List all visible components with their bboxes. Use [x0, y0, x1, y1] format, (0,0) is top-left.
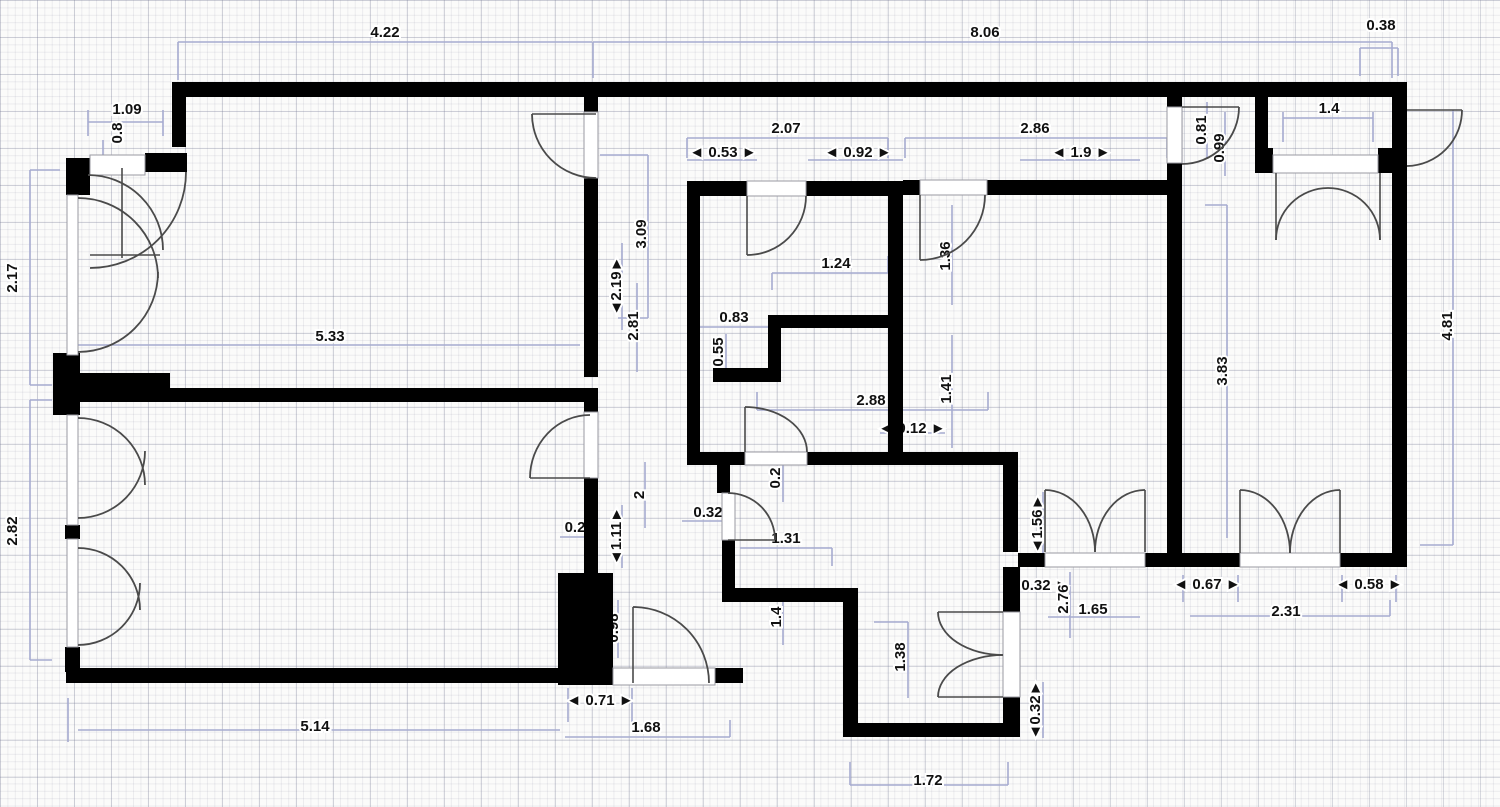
dimension-label: 1.68 [631, 719, 660, 736]
dimension-label: 0.2 [767, 468, 784, 489]
dimension-label: 0.38 [1366, 17, 1395, 34]
dimension-label: ◄ 0.58 ► [1335, 576, 1402, 593]
wall-segment [987, 180, 1167, 195]
dimension-label: 0.8 [109, 123, 126, 144]
dimension-label: 1.24 [821, 255, 851, 272]
door-window-opening [747, 181, 806, 196]
dimension-label: ◄1.56► [1029, 495, 1046, 554]
wall-segment [53, 388, 598, 402]
door-swing-arc [78, 451, 145, 518]
wall-segment [843, 602, 858, 737]
dimension-label: 1.4 [768, 606, 785, 628]
door-window-opening [584, 112, 598, 178]
door-window-opening [584, 412, 598, 478]
wall-segment [1255, 148, 1273, 173]
dimension-label: 8.06 [970, 24, 999, 41]
dimension-label: ◄ 0.71 ► [566, 692, 633, 709]
wall-segment [903, 452, 1018, 465]
dimension-label: 0.32 [693, 504, 722, 521]
wall-segment [65, 525, 80, 539]
wall-segment [713, 368, 781, 382]
dimension-label: ◄ 0.53 ► [689, 144, 756, 161]
dimension-label: 5.33 [315, 328, 344, 345]
wall-segment [1003, 567, 1020, 612]
door-window-opening [722, 493, 735, 540]
door-window-opening [613, 668, 715, 685]
door-swing-arc [1290, 490, 1340, 553]
wall-segment [1392, 82, 1407, 567]
wall-segment [1145, 553, 1240, 567]
wall-segment [584, 390, 598, 412]
door-window-opening [67, 195, 78, 355]
dimension-label: 2.82 [4, 516, 21, 545]
wall-segment [172, 97, 186, 147]
door-swing-arc [747, 196, 806, 255]
wall-segment [1255, 85, 1268, 148]
dimension-label: ◄1.11► [608, 507, 625, 565]
dimension-label: 1.4 [1319, 100, 1341, 117]
floor-plan-canvas: 4.228.060.381.090.82.172.825.335.142.07◄… [0, 0, 1500, 807]
wall-segment [768, 315, 781, 370]
wall-segment [66, 668, 633, 683]
wall-segment [888, 181, 903, 465]
dimension-label: 4.22 [370, 24, 399, 41]
dimension-label: 2.81 [625, 311, 642, 340]
wall-segment [1003, 465, 1018, 552]
door-window-opening [920, 180, 987, 195]
dimension-label: 2 [631, 491, 648, 499]
dimension-label: 1.41 [938, 374, 955, 403]
wall-segment [903, 180, 920, 195]
dimension-label: 2.88 [856, 392, 885, 409]
dimension-label: 1.72 [913, 772, 942, 789]
dimension-label: 3.09 [633, 219, 650, 248]
dimension-label: 0.81 [1193, 115, 1210, 144]
dimension-label: ◄ 0.92 ► [824, 144, 891, 161]
dimension-label: 1.65 [1078, 601, 1107, 618]
wall-segment [1340, 553, 1407, 567]
door-swing-arc [938, 655, 1003, 697]
wall-segment [717, 465, 730, 493]
door-swing-arc [78, 418, 145, 485]
door-window-opening [745, 452, 807, 465]
dimension-label: ◄ 1.9 ► [1052, 144, 1111, 161]
door-swing-arc [90, 172, 186, 268]
wall-segment [687, 452, 745, 465]
door-window-opening [67, 539, 78, 647]
wall-segment [843, 723, 1020, 737]
door-swing-arc [1045, 490, 1095, 552]
dimension-label: 4.81 [1439, 311, 1456, 340]
wall-segment [687, 181, 700, 465]
door-swing-arc [1276, 188, 1328, 240]
dimension-label: 0.55 [710, 337, 727, 366]
door-swing-arc [78, 548, 140, 610]
dimension-label: 2.31 [1271, 603, 1300, 620]
dimension-label: 1.38 [892, 642, 909, 671]
door-swing-arc [938, 612, 1003, 655]
wall-segment [1167, 163, 1182, 567]
door-swing-arc [78, 198, 158, 278]
dimension-label: ◄0.32► [1027, 681, 1044, 740]
wall-segment [1167, 97, 1182, 107]
dimension-label: 0.83 [719, 309, 748, 326]
door-swing-arc [745, 407, 807, 452]
wall-segment [558, 573, 613, 685]
wall-segment [584, 178, 598, 377]
door-window-opening [1167, 107, 1182, 163]
dimension-label: 1.09 [112, 101, 141, 118]
dimension-label: 3.83 [1214, 356, 1231, 385]
dimension-label: 2.86 [1020, 120, 1049, 137]
door-swing-arc [1328, 188, 1380, 240]
door-window-opening [67, 415, 78, 525]
floor-plan-drawing: 4.228.060.381.090.82.172.825.335.142.07◄… [0, 0, 1500, 807]
wall-segment [584, 97, 598, 112]
dimension-label: 2.07 [771, 120, 800, 137]
wall-segment [770, 315, 888, 328]
dimension-label: ◄ 0.67 ► [1173, 576, 1240, 593]
door-window-opening [1045, 553, 1145, 567]
dimension-label: 1.36 [937, 241, 954, 270]
dimension-label: 0.2 [565, 519, 586, 536]
door-window-opening [1003, 612, 1020, 697]
wall-segment [584, 478, 598, 573]
dimension-label: 2.76 [1055, 584, 1072, 613]
dimension-label: ◄2.19► [608, 257, 625, 316]
wall-segment [67, 373, 170, 390]
dimension-label: 5.14 [300, 718, 330, 735]
wall-segment [722, 588, 858, 602]
door-window-opening [1240, 553, 1340, 567]
door-swing-arc [1240, 490, 1290, 553]
door-swing-arc [78, 272, 158, 352]
wall-segment [145, 153, 187, 172]
door-window-opening [1273, 155, 1378, 173]
walls-layer [53, 82, 1407, 737]
wall-segment [1018, 553, 1045, 567]
door-swing-arc [530, 415, 590, 478]
dimension-label: 2.17 [4, 263, 21, 292]
door-window-opening [90, 155, 145, 175]
wall-segment [66, 158, 90, 195]
dimension-label: 0.99 [1211, 133, 1228, 162]
wall-segment [172, 82, 1407, 97]
door-swing-arc [1095, 490, 1145, 552]
door-swing-arc [78, 583, 140, 645]
wall-segment [807, 452, 903, 465]
